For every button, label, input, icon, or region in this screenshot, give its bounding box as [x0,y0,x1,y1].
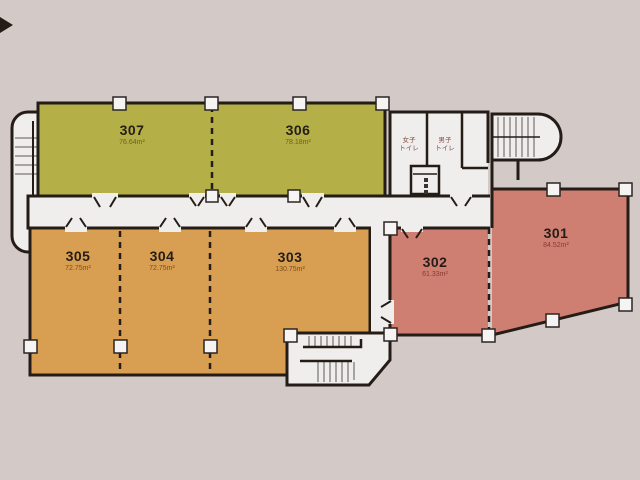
floor-plan: 307 76.64m² 306 78.18m² 305 72.75m² 304 … [0,0,640,480]
elevator [411,166,439,194]
room-302-shape [390,228,488,335]
staircase-bottom [287,333,390,385]
corridor-strip [371,222,388,334]
room-307-306-block [38,103,385,196]
floor-plan-drawing [0,0,640,480]
